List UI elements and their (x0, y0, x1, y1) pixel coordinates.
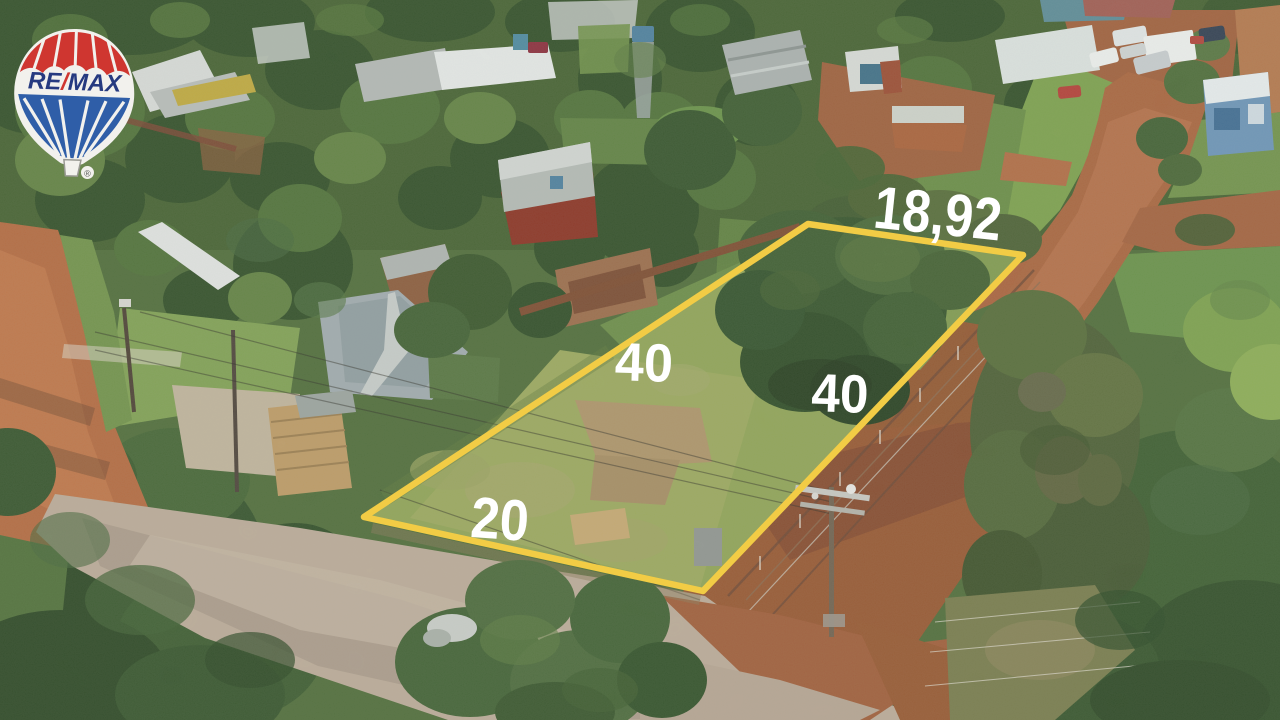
svg-text:18,92: 18,92 (871, 173, 1005, 253)
svg-text:RE/MAX: RE/MAX (27, 67, 123, 97)
svg-text:20: 20 (469, 485, 531, 554)
svg-text:40: 40 (810, 363, 869, 425)
svg-text:40: 40 (614, 332, 674, 394)
svg-text:®: ® (84, 168, 91, 178)
